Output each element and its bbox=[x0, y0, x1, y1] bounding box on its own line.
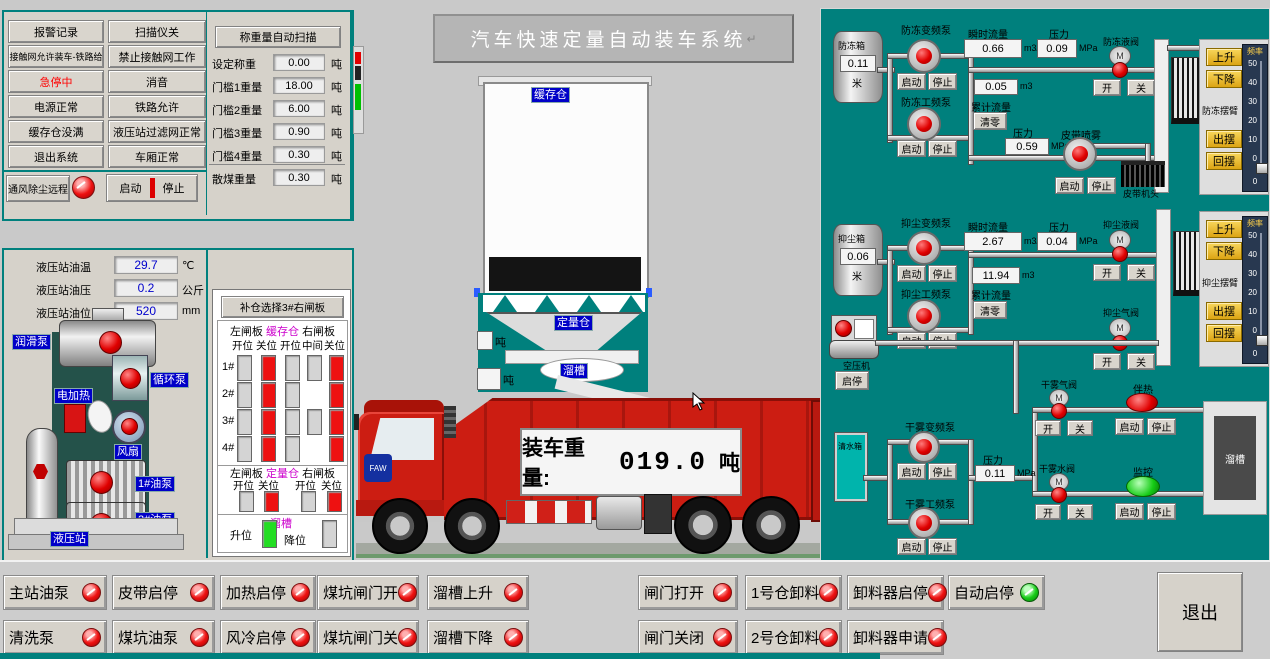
bottom-row2-label-6: 2号仓卸料 bbox=[751, 627, 819, 648]
bottom-row2-button-7[interactable]: 卸料器申请 bbox=[847, 620, 944, 655]
bottom-row1-button-2[interactable]: 加热启停 bbox=[220, 575, 316, 610]
bottom-row1-label-4: 溜槽上升 bbox=[433, 582, 493, 603]
bottom-row1-label-1: 皮带启停 bbox=[118, 582, 178, 603]
bottom-row1-indicator-2 bbox=[291, 583, 310, 602]
bottom-row1-indicator-1 bbox=[190, 583, 209, 602]
bottom-row2-label-4: 溜槽下降 bbox=[433, 627, 493, 648]
bottom-row2-indicator-6 bbox=[819, 628, 838, 647]
bottom-row2-button-5[interactable]: 闸门关闭 bbox=[638, 620, 738, 655]
bottom-row2-indicator-0 bbox=[82, 628, 101, 647]
bottom-row1-indicator-6 bbox=[819, 583, 838, 602]
bottom-row2-label-5: 闸门关闭 bbox=[644, 627, 704, 648]
exit-button[interactable]: 退出 bbox=[1157, 572, 1243, 652]
bottom-row1-indicator-8 bbox=[1020, 583, 1039, 602]
bottom-row1-indicator-0 bbox=[82, 583, 101, 602]
bottom-row2-label-2: 风冷启停 bbox=[226, 627, 286, 648]
bottom-row1-label-8: 自动启停 bbox=[954, 582, 1014, 603]
bottom-row1-label-6: 1号仓卸料 bbox=[751, 582, 819, 603]
bottom-row2-indicator-7 bbox=[928, 628, 947, 647]
bottom-row1-label-0: 主站油泵 bbox=[9, 582, 69, 603]
bottom-row1-indicator-5 bbox=[713, 583, 732, 602]
bottom-row2-indicator-3 bbox=[398, 628, 417, 647]
bottom-row2-label-1: 煤坑油泵 bbox=[118, 627, 178, 648]
bottom-buttons: 主站油泵皮带启停加热启停煤坑闸门开溜槽上升闸门打开1号仓卸料卸料器启停自动启停清… bbox=[0, 2, 1270, 659]
bottom-row2-label-0: 清洗泵 bbox=[9, 627, 54, 648]
bottom-row2-indicator-1 bbox=[190, 628, 209, 647]
station-label: 液压站 bbox=[50, 531, 89, 547]
bottom-row1-indicator-4 bbox=[504, 583, 523, 602]
bottom-row1-label-7: 卸料器启停 bbox=[853, 582, 928, 603]
bottom-row2-button-3[interactable]: 煤坑闸门关 bbox=[317, 620, 419, 655]
bottom-row1-button-6[interactable]: 1号仓卸料 bbox=[745, 575, 842, 610]
bottom-row2-label-3: 煤坑闸门关 bbox=[323, 627, 398, 648]
bottom-row2-button-6[interactable]: 2号仓卸料 bbox=[745, 620, 842, 655]
bottom-row1-button-8[interactable]: 自动启停 bbox=[948, 575, 1045, 610]
bottom-row1-indicator-7 bbox=[928, 583, 947, 602]
bottom-row2-label-7: 卸料器申请 bbox=[853, 627, 928, 648]
bottom-row1-indicator-3 bbox=[398, 583, 417, 602]
bottom-row1-label-5: 闸门打开 bbox=[644, 582, 704, 603]
bottom-row2-button-1[interactable]: 煤坑油泵 bbox=[112, 620, 215, 655]
bottom-strip: 主站油泵皮带启停加热启停煤坑闸门开溜槽上升闸门打开1号仓卸料卸料器启停自动启停清… bbox=[0, 560, 1270, 659]
bottom-row1-label-2: 加热启停 bbox=[226, 582, 286, 603]
bottom-row1-label-3: 煤坑闸门开 bbox=[323, 582, 398, 603]
bottom-row2-indicator-5 bbox=[713, 628, 732, 647]
bottom-row1-button-4[interactable]: 溜槽上升 bbox=[427, 575, 529, 610]
bottom-row2-indicator-4 bbox=[504, 628, 523, 647]
bottom-row2-button-2[interactable]: 风冷启停 bbox=[220, 620, 316, 655]
bottom-row2-indicator-2 bbox=[291, 628, 310, 647]
bottom-row1-button-1[interactable]: 皮带启停 bbox=[112, 575, 215, 610]
bottom-edge-bar bbox=[0, 653, 880, 659]
bottom-row1-button-3[interactable]: 煤坑闸门开 bbox=[317, 575, 419, 610]
bottom-row1-button-0[interactable]: 主站油泵 bbox=[3, 575, 107, 610]
bottom-row2-button-4[interactable]: 溜槽下降 bbox=[427, 620, 529, 655]
bottom-row1-button-7[interactable]: 卸料器启停 bbox=[847, 575, 944, 610]
bottom-row2-button-0[interactable]: 清洗泵 bbox=[3, 620, 107, 655]
bottom-row1-button-5[interactable]: 闸门打开 bbox=[638, 575, 738, 610]
